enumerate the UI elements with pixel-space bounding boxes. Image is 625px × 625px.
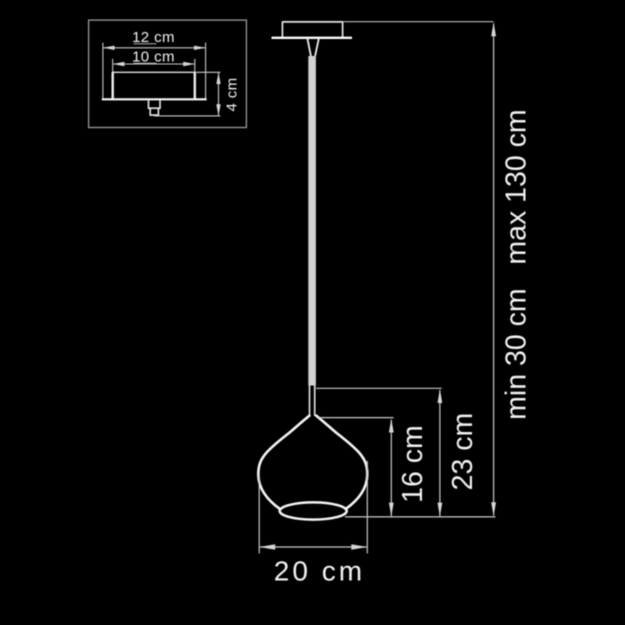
svg-text:23 cm: 23 cm <box>447 413 479 491</box>
svg-text:4 cm: 4 cm <box>224 77 241 111</box>
svg-text:20 cm: 20 cm <box>274 556 365 587</box>
svg-text:min 30 cm max 130 cm: min 30 cm max 130 cm <box>501 109 533 419</box>
svg-text:16 cm: 16 cm <box>397 425 429 503</box>
